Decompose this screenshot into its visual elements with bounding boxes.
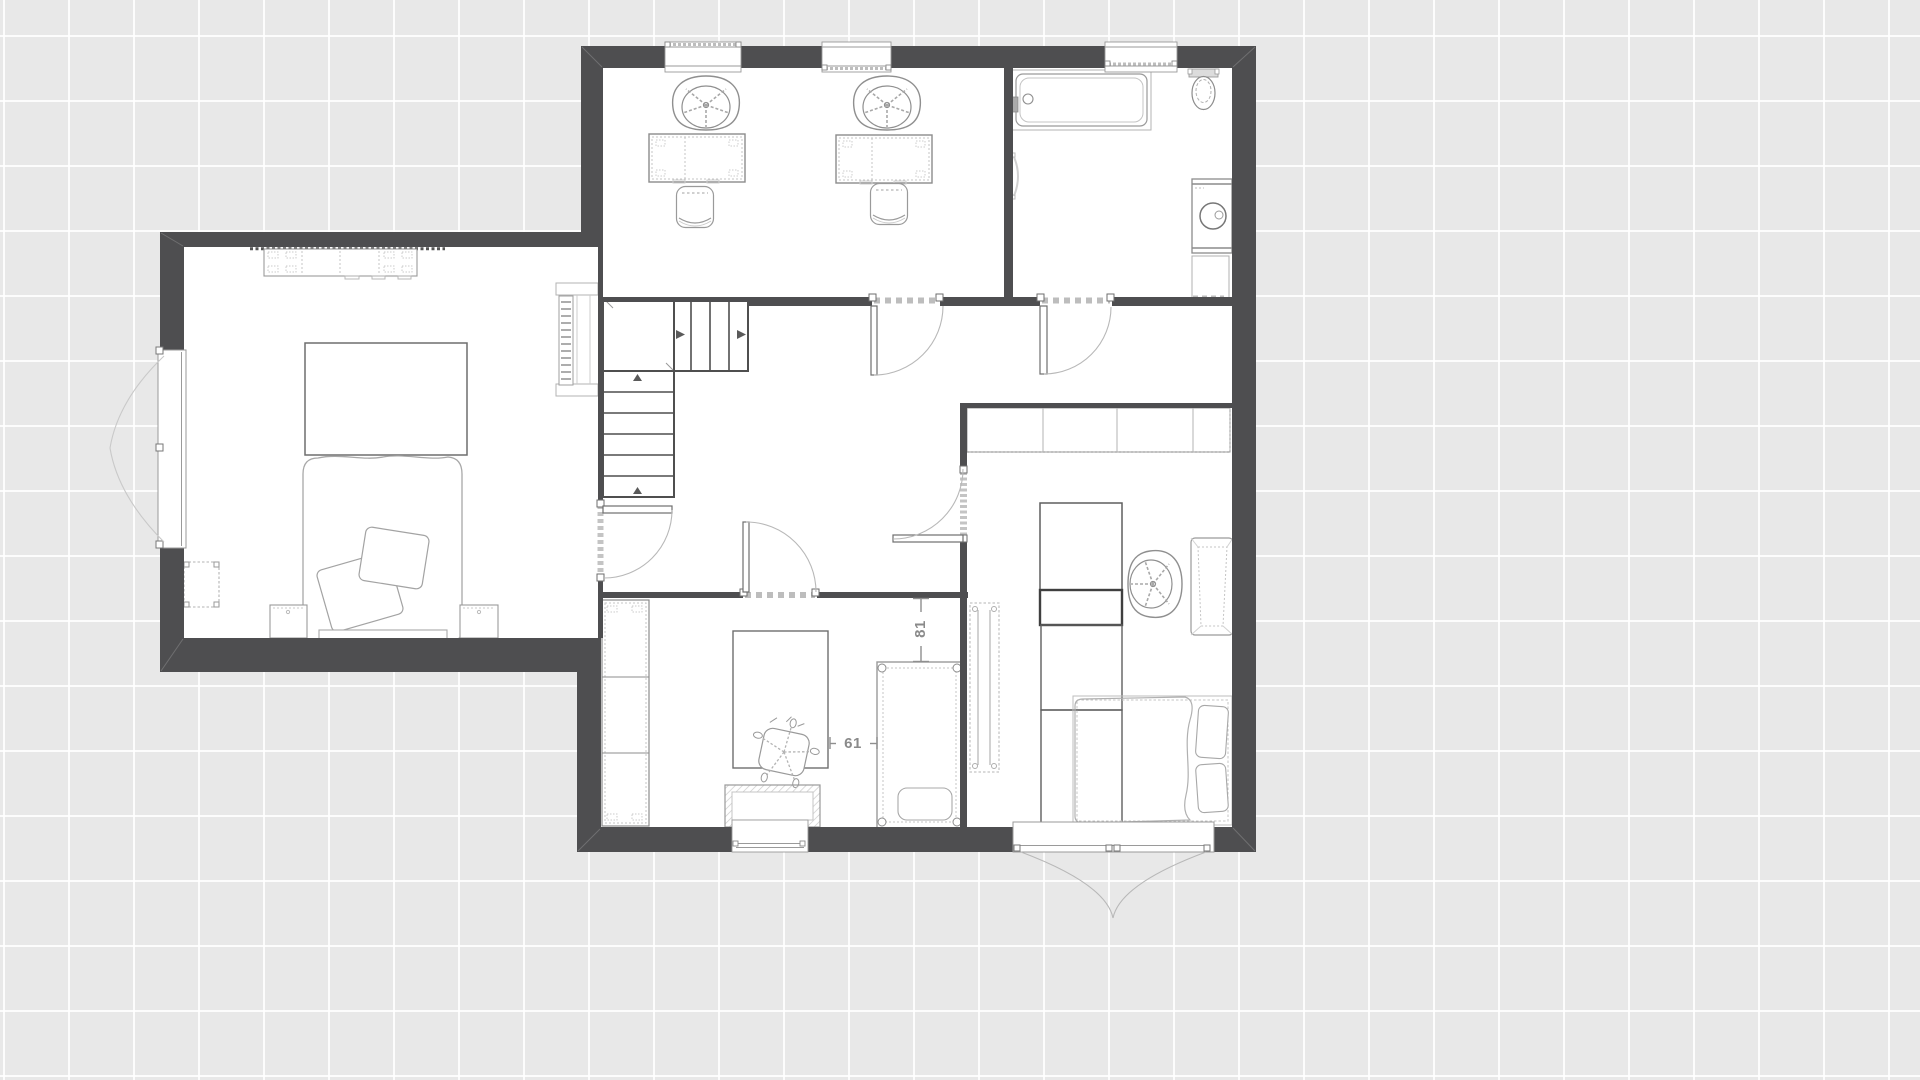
- wall-hall-top-c: [1112, 297, 1232, 306]
- headboard: [319, 630, 447, 639]
- door-swing-arc: [110, 356, 164, 448]
- wall-hall-bottom-a: [601, 592, 743, 598]
- french-door-bedroom-west[interactable]: [110, 347, 186, 548]
- wall-office-left: [581, 46, 603, 247]
- door-leaf: [603, 506, 672, 513]
- stair-landing: [603, 298, 674, 371]
- window-bathroom[interactable]: [1105, 42, 1177, 72]
- side-table[interactable]: [184, 562, 219, 607]
- wall-bedroom-bottom: [160, 638, 601, 672]
- wall-hall-bottom-b: [817, 592, 968, 598]
- dimension-label-61: 61: [836, 735, 870, 753]
- wall-rbed-left-a: [960, 403, 967, 470]
- door-swing-arc: [110, 448, 164, 542]
- dimension-label-81: 81: [912, 612, 930, 646]
- wall-rbed-left-b: [960, 538, 967, 827]
- office-chair[interactable]: [673, 76, 740, 130]
- closet[interactable]: [602, 600, 649, 826]
- stair-upper-flight: [674, 298, 748, 371]
- door-swing-arc: [1113, 852, 1206, 918]
- wall-office-bath-divider: [1004, 68, 1013, 297]
- washing-machine[interactable]: [1192, 179, 1232, 253]
- wall-bedroom-hall-lower: [598, 578, 603, 638]
- floorplan-svg: [0, 0, 1920, 1080]
- dresser[interactable]: [250, 249, 445, 279]
- double-bed[interactable]: [303, 456, 462, 641]
- window-office-1[interactable]: [665, 42, 741, 72]
- nightstand-right[interactable]: [460, 605, 498, 638]
- door-leaf: [871, 306, 877, 375]
- radiator-right-bedroom[interactable]: [970, 603, 999, 772]
- pillow: [358, 526, 430, 589]
- wall-bedroom-hall-upper: [598, 247, 603, 503]
- pillow: [1195, 763, 1228, 813]
- desk[interactable]: [836, 135, 932, 184]
- desk-chair[interactable]: [1128, 551, 1182, 618]
- bedroom-rug[interactable]: [305, 343, 467, 455]
- desk[interactable]: [649, 134, 745, 183]
- pillow: [1195, 705, 1229, 759]
- door-leaf: [743, 522, 749, 592]
- stool[interactable]: [677, 187, 714, 228]
- wall-hall-top-a: [748, 297, 872, 306]
- office-chair[interactable]: [854, 76, 921, 130]
- wall-right: [1232, 46, 1256, 852]
- crib[interactable]: [877, 662, 962, 828]
- wall-rbed-top: [963, 403, 1232, 408]
- wall-hall-top-b: [940, 297, 1040, 306]
- door-swing-arc: [1021, 852, 1113, 918]
- wall-bedroom-top: [160, 232, 603, 247]
- bench-seat[interactable]: [1191, 538, 1233, 635]
- wall-bedroom-left-upper: [160, 232, 184, 350]
- window-nursery[interactable]: [732, 820, 808, 852]
- wall-office-bottom-thin: [603, 297, 748, 302]
- wall-bedroom-left-lower: [160, 548, 184, 672]
- nightstand-left[interactable]: [270, 605, 307, 638]
- bathtub[interactable]: [1012, 70, 1151, 130]
- door-leaf: [1040, 306, 1047, 374]
- window-office-2[interactable]: [822, 42, 891, 72]
- laundry-cabinet[interactable]: [1192, 256, 1229, 300]
- french-window-right-bedroom[interactable]: [1013, 822, 1214, 918]
- stool[interactable]: [871, 184, 908, 225]
- crib-pillow: [898, 788, 952, 820]
- wardrobe[interactable]: [967, 408, 1230, 452]
